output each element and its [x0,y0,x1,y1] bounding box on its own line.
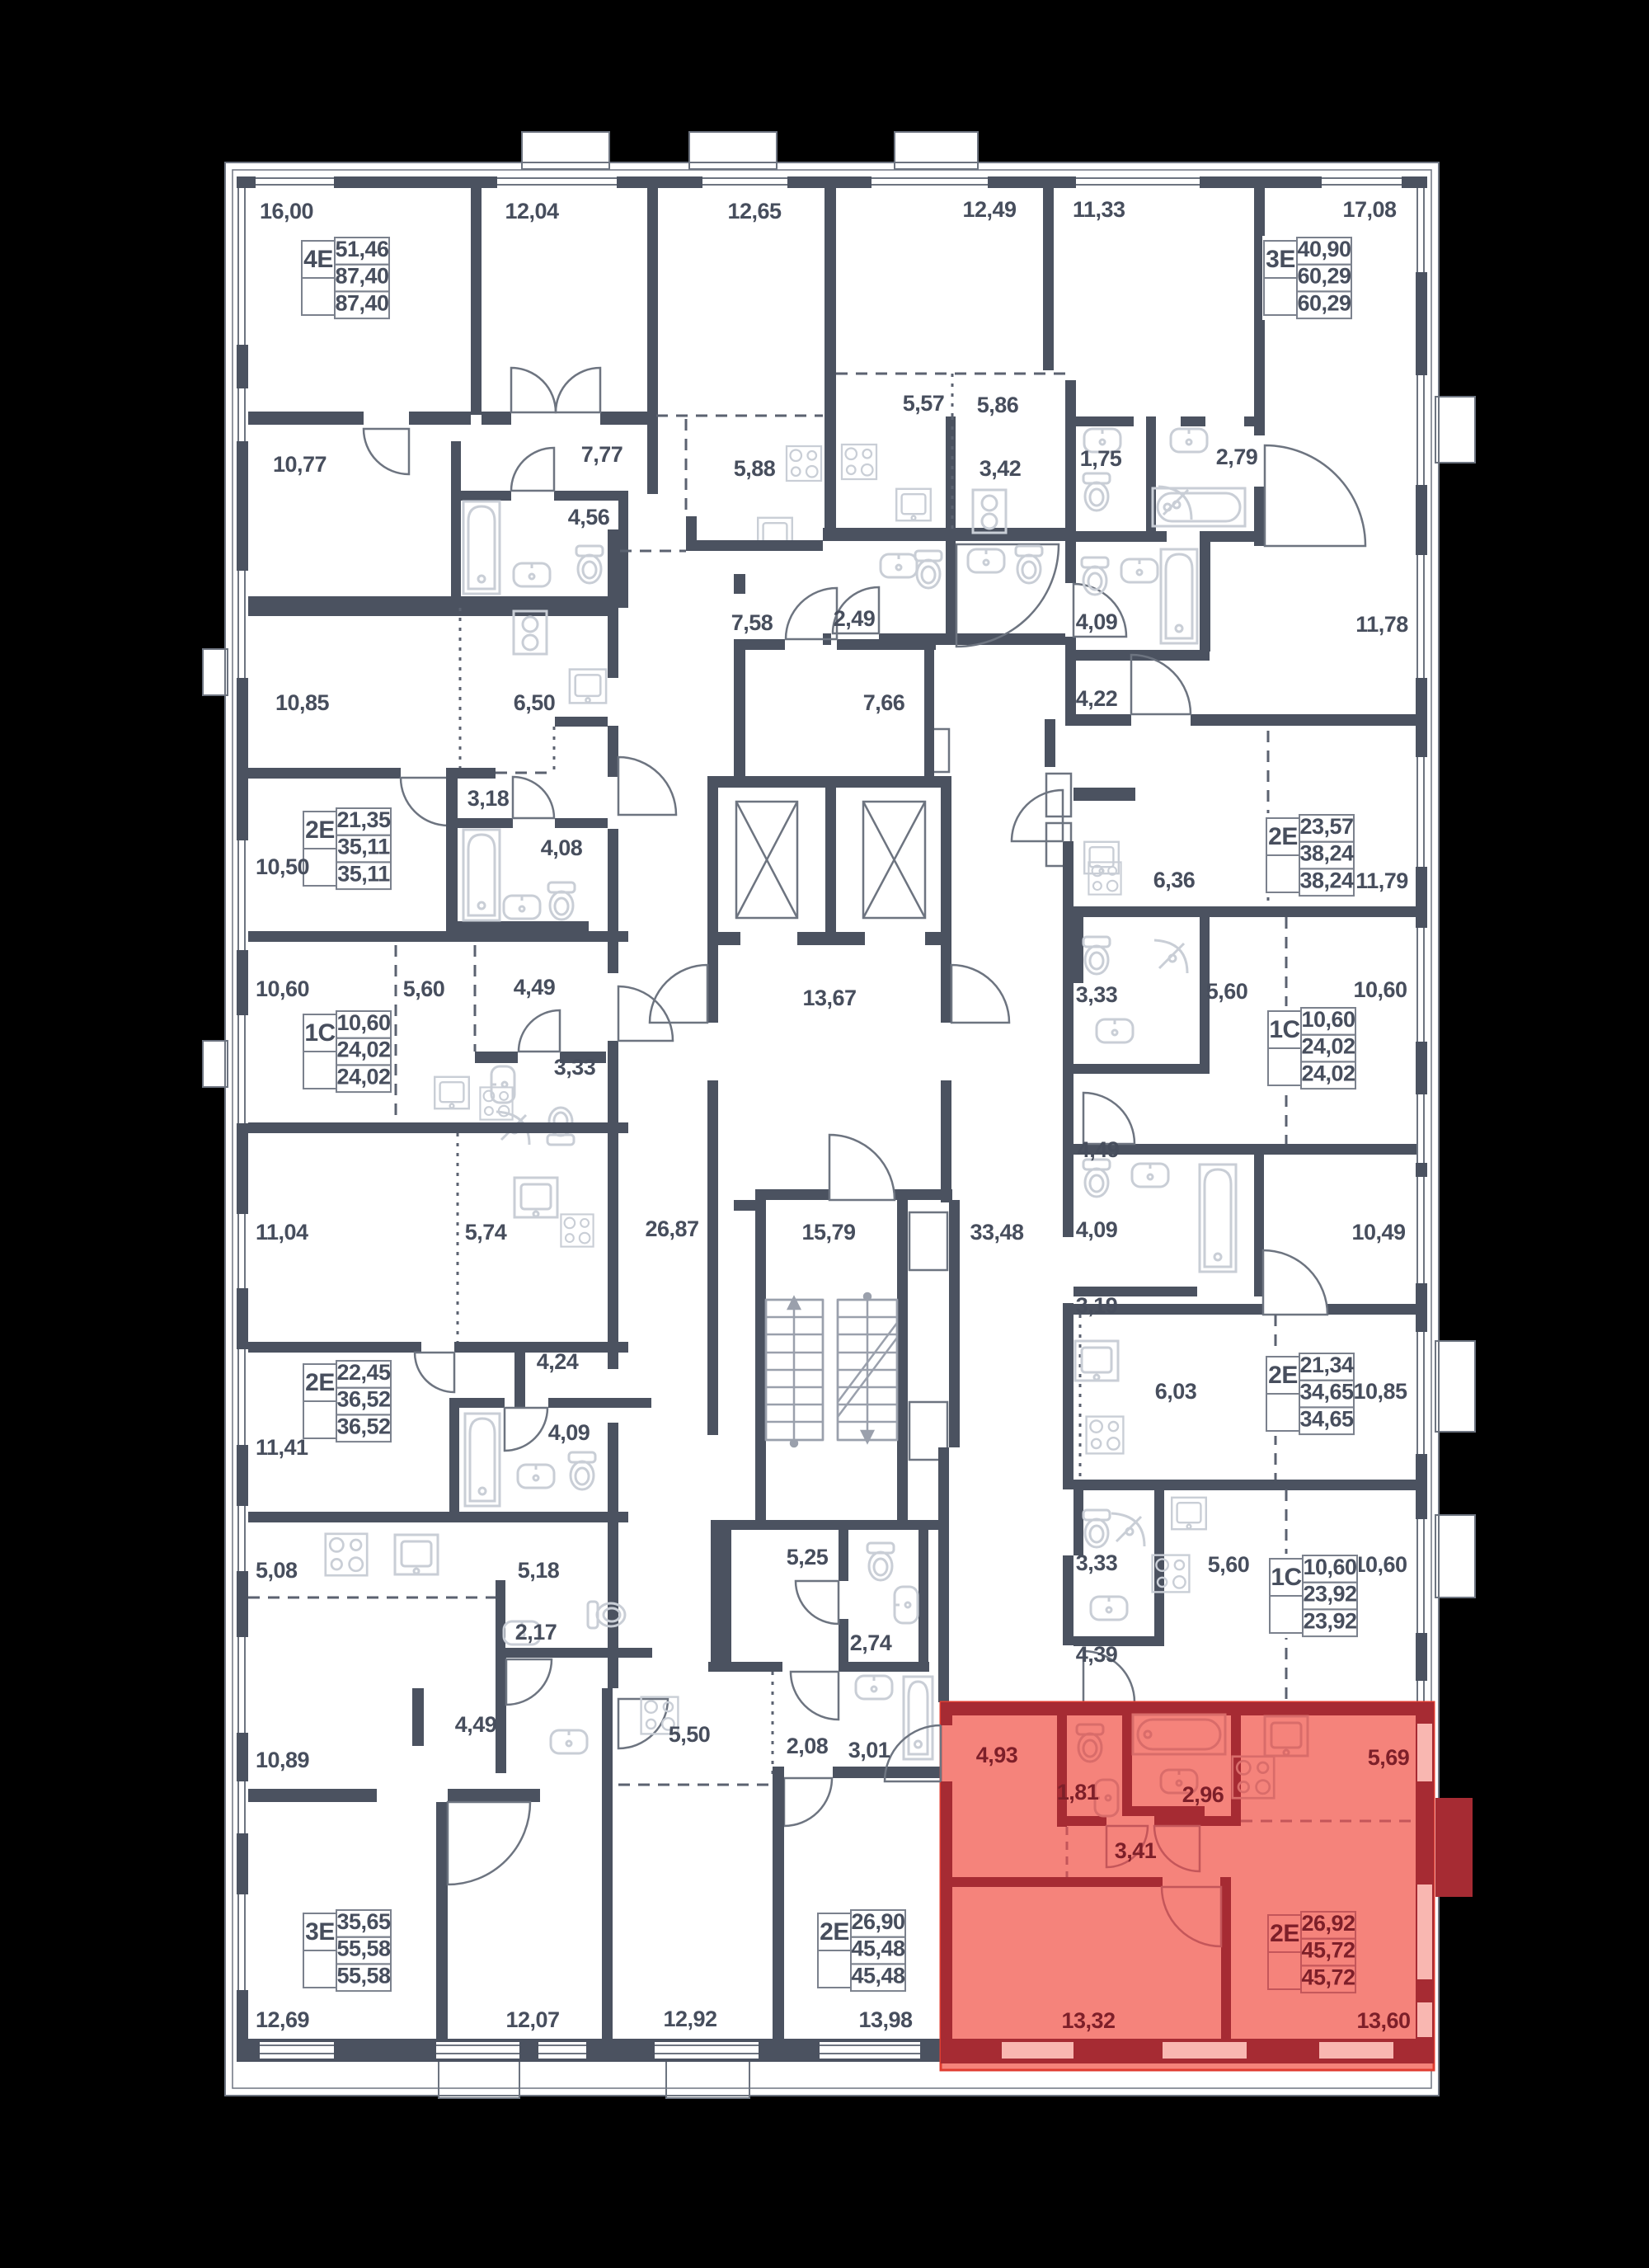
svg-text:10,77: 10,77 [273,452,327,477]
svg-text:12,49: 12,49 [962,197,1017,222]
svg-text:1,75: 1,75 [1080,446,1122,471]
svg-text:11,04: 11,04 [256,1220,308,1245]
svg-text:12,04: 12,04 [505,199,559,224]
svg-text:40,90: 40,90 [1297,237,1351,261]
svg-text:6,36: 6,36 [1153,868,1196,892]
svg-text:26,87: 26,87 [645,1216,698,1241]
svg-text:24,02: 24,02 [1301,1034,1355,1059]
svg-text:26,90: 26,90 [851,1909,904,1934]
svg-text:5,74: 5,74 [465,1220,507,1245]
svg-text:5,50: 5,50 [669,1722,711,1747]
svg-text:4,93: 4,93 [976,1743,1018,1767]
svg-text:5,60: 5,60 [403,976,445,1001]
svg-text:10,60: 10,60 [1353,1552,1407,1577]
svg-text:10,85: 10,85 [275,690,330,715]
svg-text:11,41: 11,41 [256,1435,308,1460]
svg-text:4,09: 4,09 [548,1420,590,1445]
svg-text:24,02: 24,02 [336,1064,390,1089]
svg-text:5,86: 5,86 [977,393,1019,417]
svg-text:87,40: 87,40 [335,290,388,315]
svg-text:21,35: 21,35 [336,807,391,832]
svg-text:22,45: 22,45 [336,1360,391,1385]
svg-text:4,49: 4,49 [455,1712,497,1737]
svg-text:51,46: 51,46 [335,237,389,261]
svg-text:10,60: 10,60 [1301,1007,1355,1032]
svg-text:24,02: 24,02 [336,1038,390,1062]
svg-text:4E: 4E [303,246,333,273]
svg-text:3,33: 3,33 [1076,982,1118,1007]
svg-text:10,85: 10,85 [1353,1379,1407,1404]
svg-text:55,58: 55,58 [336,1963,391,1988]
svg-text:12,69: 12,69 [256,2007,310,2032]
svg-text:3,41: 3,41 [1115,1838,1157,1863]
svg-text:7,77: 7,77 [581,442,623,467]
svg-text:1,81: 1,81 [1057,1780,1099,1805]
svg-text:4,09: 4,09 [1076,1217,1118,1242]
svg-text:4,56: 4,56 [568,505,610,529]
svg-text:10,60: 10,60 [1353,977,1407,1002]
svg-text:3,33: 3,33 [554,1055,596,1080]
svg-text:3,42: 3,42 [980,456,1022,481]
svg-text:4,09: 4,09 [1076,609,1118,634]
svg-text:33,48: 33,48 [970,1220,1024,1245]
svg-text:11,33: 11,33 [1073,197,1125,222]
svg-text:45,72: 45,72 [1301,1938,1355,1963]
svg-text:5,25: 5,25 [787,1545,829,1569]
svg-text:6,50: 6,50 [514,690,556,715]
svg-text:45,48: 45,48 [851,1936,905,1961]
svg-text:36,52: 36,52 [336,1414,390,1438]
svg-text:7,66: 7,66 [863,690,905,715]
svg-text:35,11: 35,11 [337,861,390,886]
svg-text:2,79: 2,79 [1216,445,1258,469]
svg-text:4,39: 4,39 [1076,1642,1118,1667]
svg-text:2E: 2E [1268,823,1298,850]
svg-text:7,58: 7,58 [731,610,773,635]
svg-text:4,49: 4,49 [1078,1137,1120,1162]
svg-text:10,49: 10,49 [1351,1220,1406,1245]
svg-text:34,65: 34,65 [1299,1406,1354,1431]
svg-text:13,98: 13,98 [858,2007,913,2032]
svg-text:2,74: 2,74 [850,1630,892,1655]
svg-text:5,69: 5,69 [1368,1745,1410,1770]
svg-text:4,08: 4,08 [541,835,583,860]
svg-text:5,88: 5,88 [734,456,776,481]
svg-text:38,24: 38,24 [1299,841,1354,866]
svg-text:3,19: 3,19 [1076,1293,1118,1318]
svg-text:13,60: 13,60 [1356,2008,1410,2033]
svg-text:15,79: 15,79 [801,1220,856,1245]
svg-text:5,60: 5,60 [1206,979,1248,1004]
svg-text:12,92: 12,92 [663,2007,716,2031]
svg-text:36,52: 36,52 [336,1387,390,1412]
svg-text:3,33: 3,33 [1076,1550,1118,1575]
svg-text:38,24: 38,24 [1299,868,1354,892]
svg-text:4,22: 4,22 [1076,686,1118,711]
svg-text:5,60: 5,60 [1208,1552,1250,1577]
svg-text:2,08: 2,08 [787,1734,829,1758]
svg-text:1C: 1C [1269,1016,1299,1043]
svg-text:2,49: 2,49 [834,606,876,631]
svg-text:5,57: 5,57 [903,391,945,416]
svg-text:21,34: 21,34 [1299,1353,1354,1377]
svg-text:5,18: 5,18 [518,1558,560,1583]
svg-text:24,02: 24,02 [1301,1061,1355,1085]
svg-text:2,17: 2,17 [515,1620,557,1645]
svg-text:2E: 2E [305,816,335,844]
svg-text:16,00: 16,00 [260,199,313,224]
svg-text:13,67: 13,67 [802,986,856,1010]
svg-text:2E: 2E [305,1369,335,1396]
svg-text:23,92: 23,92 [1303,1608,1356,1633]
svg-text:3E: 3E [305,1918,335,1946]
svg-text:55,58: 55,58 [336,1936,391,1961]
svg-text:11,79: 11,79 [1355,868,1408,893]
svg-text:3E: 3E [1266,246,1295,273]
svg-text:45,72: 45,72 [1301,1965,1355,1989]
svg-text:23,92: 23,92 [1303,1582,1356,1607]
svg-text:13,32: 13,32 [1061,2008,1115,2033]
svg-text:5,08: 5,08 [256,1558,298,1583]
svg-text:4,24: 4,24 [537,1349,579,1374]
svg-text:35,65: 35,65 [336,1909,391,1934]
svg-text:35,11: 35,11 [337,835,390,859]
svg-text:2,96: 2,96 [1182,1782,1224,1807]
svg-text:23,57: 23,57 [1299,814,1353,839]
svg-text:2E: 2E [820,1918,849,1946]
svg-text:10,60: 10,60 [336,1010,390,1035]
svg-text:12,65: 12,65 [727,199,782,224]
svg-text:11,78: 11,78 [1355,612,1408,637]
svg-text:1C: 1C [1271,1564,1301,1591]
svg-text:34,65: 34,65 [1299,1380,1354,1405]
svg-text:4,49: 4,49 [514,975,556,1000]
svg-text:87,40: 87,40 [335,264,388,289]
svg-text:10,50: 10,50 [256,854,309,879]
svg-text:17,08: 17,08 [1342,197,1397,222]
svg-text:10,60: 10,60 [256,976,309,1001]
svg-text:10,89: 10,89 [256,1748,310,1772]
svg-text:3,01: 3,01 [848,1738,890,1762]
svg-text:1C: 1C [304,1019,335,1047]
svg-text:45,48: 45,48 [851,1963,905,1988]
svg-text:3,18: 3,18 [467,786,510,811]
svg-text:60,29: 60,29 [1297,290,1351,315]
svg-text:26,92: 26,92 [1301,1911,1355,1936]
svg-text:10,60: 10,60 [1303,1555,1356,1579]
svg-text:2E: 2E [1268,1362,1298,1389]
svg-text:6,03: 6,03 [1155,1379,1197,1404]
svg-text:2E: 2E [1270,1920,1299,1947]
svg-text:60,29: 60,29 [1297,264,1351,289]
svg-text:12,07: 12,07 [505,2007,559,2032]
